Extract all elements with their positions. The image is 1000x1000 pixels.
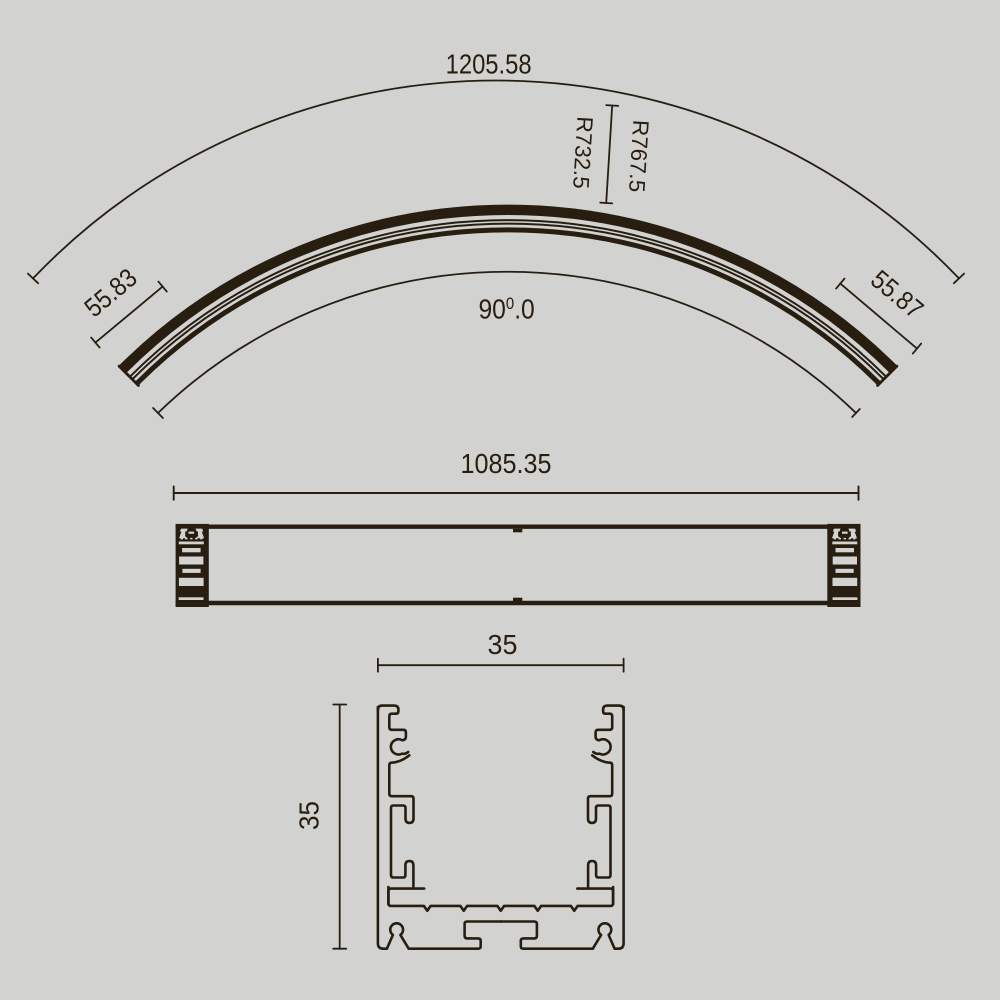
- svg-text:R732.5: R732.5: [568, 116, 597, 190]
- svg-text:55.83: 55.83: [79, 263, 143, 323]
- svg-text:900.0: 900.0: [478, 293, 534, 325]
- svg-text:1205.58: 1205.58: [446, 48, 532, 80]
- svg-text:35: 35: [488, 628, 518, 660]
- svg-text:1085.35: 1085.35: [461, 448, 552, 479]
- svg-text:R767.5: R767.5: [624, 119, 653, 193]
- svg-text:55.87: 55.87: [865, 265, 929, 325]
- svg-text:35: 35: [294, 801, 325, 830]
